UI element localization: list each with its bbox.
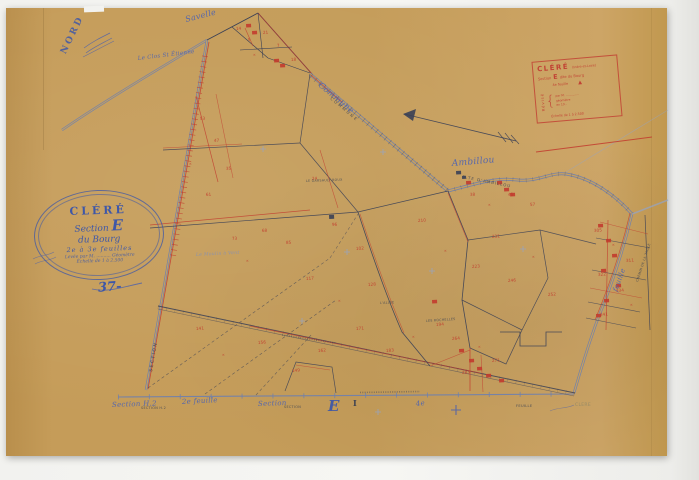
parcel-number: 53 [200, 116, 206, 121]
parcel-number: 85 [286, 240, 292, 245]
building-footprint [477, 367, 482, 371]
parcel-number: × [338, 299, 341, 303]
parcel-number: 252 [548, 291, 557, 297]
parcel-number: × [478, 345, 481, 349]
map-line [83, 41, 114, 57]
map-label: Le Clos St Étienne [136, 47, 195, 62]
parcel-number: 117 [306, 275, 315, 281]
survey-cross-icon [380, 149, 386, 155]
map-line [448, 191, 470, 348]
map-line [540, 230, 596, 244]
map-label: FEUILLE [516, 404, 533, 408]
revision-section-letter: E [553, 73, 558, 81]
revision-lines: par M. .............. géomètre en 19.. [555, 92, 580, 108]
building-footprint [329, 215, 334, 219]
parcel-number: 57 [530, 202, 536, 207]
map-label: Le Moulin à Vent [195, 249, 240, 258]
parcel-number: × [253, 53, 256, 57]
parcel-number: 141 [196, 325, 205, 331]
parcel-number: 156 [258, 339, 267, 345]
map-line [536, 137, 652, 152]
map-label: I [353, 398, 357, 408]
map-line [300, 74, 310, 143]
parcel-number: 246 [508, 277, 517, 283]
parcel-number: 305 [594, 227, 603, 233]
map-line [448, 193, 468, 242]
parcel-number: 223 [472, 263, 481, 269]
parcel-number: 38 [470, 192, 476, 197]
parcel-number: 271 [492, 357, 501, 363]
map-line [586, 318, 636, 328]
parcel-number: × [189, 162, 192, 166]
parcel-number: 102 [356, 245, 365, 251]
revision-section-suffix: dite du Bourg [560, 73, 585, 79]
map-line [250, 326, 480, 373]
map-line [86, 38, 112, 53]
north-arrow-head-icon [403, 109, 416, 121]
map-line [645, 215, 650, 330]
parcel-number: 128 [368, 281, 377, 287]
parcel-number: 61 [206, 192, 212, 197]
map-line [632, 200, 668, 214]
survey-cross-icon [451, 405, 461, 415]
parcel-number: × [488, 203, 491, 207]
map-line [511, 135, 519, 144]
parcel-number: 21 [263, 30, 269, 35]
map-line [282, 335, 336, 343]
map-label: Ambillou [450, 155, 495, 169]
parcel-number: 264 [452, 335, 461, 341]
parcel-number: 9 [248, 37, 251, 42]
parcel-number: 341 [600, 311, 609, 317]
parcel-number: 73 [232, 236, 238, 241]
building-footprint [499, 379, 504, 383]
map-label: Section [258, 399, 287, 408]
oval-section-word: Section [74, 224, 109, 235]
parcel-number: 194 [436, 321, 445, 327]
parcel-number: 149 [292, 367, 301, 373]
brace-icon: { [545, 94, 555, 109]
building-footprint [432, 300, 437, 304]
parcel-number: 14 [236, 26, 242, 31]
oval-section-line: SectionE [74, 217, 123, 236]
map-line [505, 133, 513, 143]
map-label: CHEMIN DE LA TAILLE [635, 243, 651, 283]
building-footprint [612, 254, 617, 258]
building-footprint [469, 359, 474, 363]
survey-cross-icon [429, 268, 435, 274]
map-label: E [327, 397, 340, 415]
parcel-number: 311 [626, 257, 635, 263]
map-label: L'ALLÉE [380, 299, 395, 305]
map-line [522, 230, 548, 330]
map-line [240, 47, 292, 50]
survey-cross-icon [375, 409, 381, 415]
revision-section-word: Section [538, 76, 552, 81]
triangle-symbol-icon: ▲ [578, 80, 582, 86]
building-footprint [459, 349, 464, 353]
revision-sheet-text: 4e feuille [552, 82, 568, 87]
parcel-number: 96 [332, 222, 338, 227]
map-line [360, 392, 420, 393]
building-footprint [486, 374, 491, 378]
parcel-number: × [630, 303, 633, 307]
building-footprint [604, 299, 609, 303]
map-label: SECTION [284, 405, 301, 409]
map-label: SECTION [148, 341, 159, 372]
parcel-number: 162 [318, 347, 327, 353]
map-line [430, 350, 470, 366]
map-line [468, 230, 540, 240]
parcel-number: × [444, 249, 447, 253]
map-line [285, 362, 336, 393]
map-label: 4e [414, 399, 425, 408]
survey-cross-icon [299, 318, 305, 324]
parcel-number: 283 [462, 369, 471, 375]
parcel-number: × [222, 353, 225, 357]
parcel-number: 18 [291, 57, 297, 62]
survey-cross-icon [520, 246, 526, 252]
building-footprint [504, 188, 509, 192]
map-line [404, 114, 516, 141]
parcel-number: 210 [418, 217, 427, 223]
map-label: 2e feuille [181, 396, 218, 406]
map-line [462, 300, 522, 330]
oval-section-letter: E [111, 216, 123, 234]
parcel-number: 183 [386, 347, 395, 353]
survey-cross-icon [260, 146, 266, 152]
map-line [330, 214, 358, 258]
sheet-number: 37- [98, 279, 122, 296]
map-label: Savelle [184, 8, 217, 24]
map-line [600, 222, 648, 234]
parcel-number: 171 [356, 325, 365, 331]
map-line [163, 144, 242, 148]
parcel-number: 35 [226, 166, 232, 171]
map-line [358, 212, 430, 366]
oval-scale-line: Échelle de 1 à 2.500 [77, 259, 124, 266]
revision-stamp: CLÉRÉ (Indre-et-Loire) Section E dite du… [531, 54, 622, 123]
oval-stamp-inner-ring: CLÉRÉ SectionE du Bourg 2e à 3e feuilles… [37, 192, 162, 278]
parcel-number: 68 [262, 228, 268, 233]
building-footprint [252, 31, 257, 35]
parcel-number: 231 [492, 233, 501, 239]
map-label: CLERE [575, 402, 591, 408]
building-footprint [466, 181, 471, 185]
building-footprint [280, 64, 285, 68]
building-footprint [246, 24, 251, 28]
map-line [163, 143, 300, 150]
parcel-number: × [412, 335, 415, 339]
map-line [360, 214, 404, 333]
building-footprint [456, 171, 461, 175]
building-footprint [606, 239, 611, 243]
map-line [500, 332, 562, 346]
parcel-number: 47 [214, 138, 220, 143]
map-line [550, 405, 574, 411]
map-label: LE GARSAULT ROUX [306, 178, 343, 183]
revision-line-3: en 19.. [556, 101, 580, 108]
parcel-number: × [532, 255, 535, 259]
map-label: SECTION H.2 [141, 406, 166, 410]
parcel-number: 45 [508, 192, 514, 197]
revision-department: (Indre-et-Loire) [572, 63, 596, 69]
map-line [358, 191, 448, 212]
survey-cross-icon [344, 249, 350, 255]
parcel-number: × [612, 243, 615, 247]
map-line [150, 212, 358, 228]
scanned-document: 14921718×5347×35617368×852496102117×1281… [0, 0, 699, 480]
map-line [205, 300, 336, 394]
parcel-number: 322 [598, 271, 607, 277]
building-footprint [274, 59, 279, 63]
parcel-number: 7 [277, 43, 280, 48]
map-line [118, 394, 574, 397]
parcel-number: × [246, 259, 249, 263]
